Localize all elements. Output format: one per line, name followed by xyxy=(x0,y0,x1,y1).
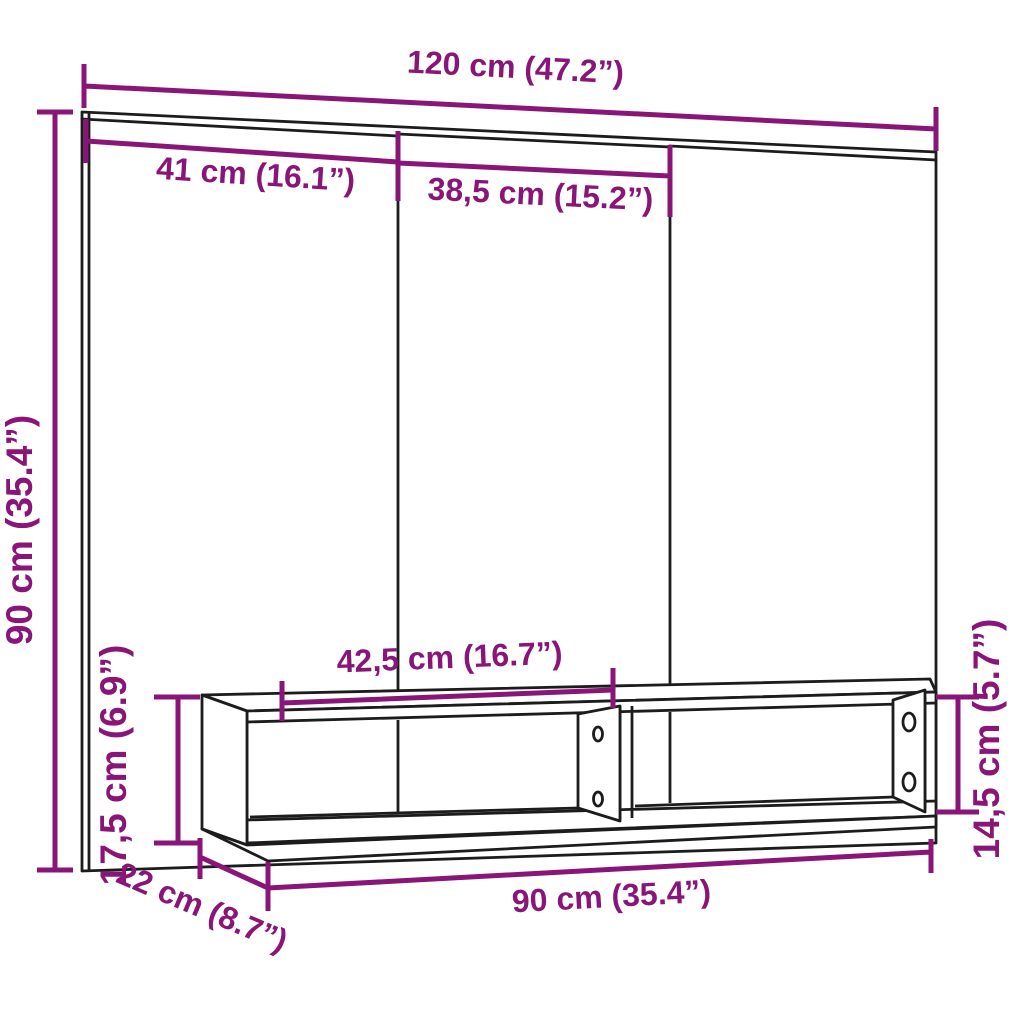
screw-hole-icon xyxy=(903,773,915,791)
furniture-dimension-diagram: 120 cm (47.2”) 41 cm (16.1”) 38,5 cm (15… xyxy=(0,0,1024,1024)
label-total-height: 90 cm (35.4”) xyxy=(0,415,40,645)
label-shelf-inner-height: 14,5 cm (5.7”) xyxy=(966,619,1007,860)
screw-hole-icon xyxy=(594,792,603,806)
right-panel-left-face xyxy=(893,690,925,812)
label-shelf-outer-height: 17,5 cm (6.9”) xyxy=(93,645,134,886)
diagram-canvas: 120 cm (47.2”) 41 cm (16.1”) 38,5 cm (15… xyxy=(0,0,1024,1024)
screw-hole-icon xyxy=(903,713,915,731)
dim-line-total-height xyxy=(37,112,73,870)
label-shelf-width: 90 cm (35.4”) xyxy=(511,873,712,920)
screw-hole-icon xyxy=(594,727,603,741)
wall-shelf xyxy=(202,679,936,861)
shelf-left-face xyxy=(202,695,247,845)
label-total-width: 120 cm (47.2”) xyxy=(406,44,625,91)
